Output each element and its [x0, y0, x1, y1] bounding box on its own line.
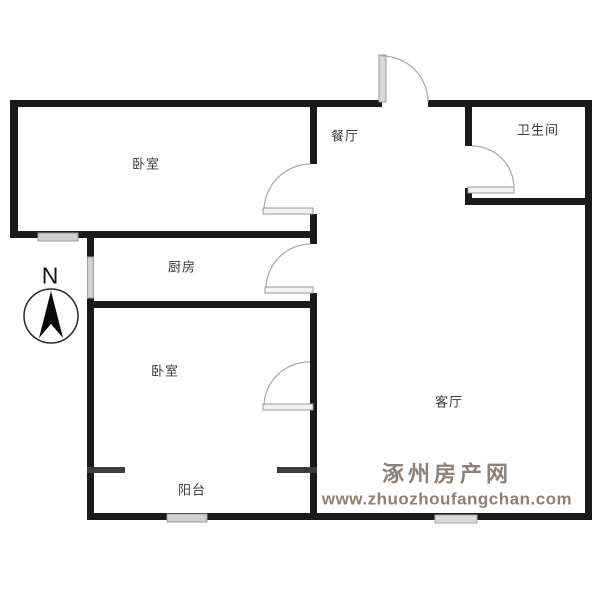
room-label-dining: 餐厅 — [331, 126, 359, 145]
room-label-bedroom-bottom: 卧室 — [151, 361, 179, 380]
watermark-site-url: www.zhuozhoufangchan.com — [322, 490, 572, 510]
bedroom-bottom-door-panel — [263, 404, 313, 410]
watermark: 涿州房产网 www.zhuozhoufangchan.com — [322, 457, 572, 510]
wall-center-mid — [310, 214, 317, 244]
wall-top-left-segment — [10, 100, 382, 107]
bedroom-top-door-panel — [263, 208, 313, 214]
wall-center-upper — [310, 100, 317, 164]
bathroom-door-panel — [468, 187, 514, 193]
bedroom-top-door-swing-arc — [264, 164, 311, 209]
wall-bottom — [87, 513, 592, 520]
wall-balcony-stub-left — [87, 467, 125, 473]
floor-plan: 卧室 餐厅 卫生间 厨房 卧室 客厅 阳台 N 涿州房产网 www.zhuozh… — [0, 0, 600, 600]
wall-right — [585, 100, 592, 520]
room-label-bathroom: 卫生间 — [517, 120, 559, 139]
bedroom-bottom-door-swing-arc — [264, 362, 310, 405]
wall-bathroom-left-upper — [465, 107, 472, 146]
wall-bedroom-bottom-left — [87, 308, 94, 520]
window-balcony — [167, 514, 207, 522]
wall-balcony-stub-right — [277, 467, 317, 473]
wall-top-right-segment — [428, 100, 592, 107]
kitchen-door-swing-arc — [266, 244, 311, 288]
room-label-living: 客厅 — [435, 392, 463, 411]
bathroom-door-swing-arc — [472, 146, 514, 188]
entrance-door-swing-arc — [382, 56, 428, 102]
room-label-bedroom-top: 卧室 — [132, 154, 160, 173]
floor-plan-drawing — [0, 0, 600, 600]
compass-north-label: N — [42, 263, 59, 290]
window-bedroom-top — [38, 233, 78, 241]
window-kitchen — [88, 257, 94, 298]
wall-bathroom-bottom — [465, 198, 592, 205]
wall-bedroom-top-left — [10, 100, 18, 238]
entrance-door-panel — [379, 55, 386, 102]
window-living-room — [435, 515, 477, 523]
room-label-kitchen: 厨房 — [168, 257, 196, 276]
room-label-balcony: 阳台 — [178, 480, 206, 499]
kitchen-door-panel — [265, 287, 313, 293]
watermark-site-name: 涿州房产网 — [322, 457, 572, 489]
wall-kitchen-bedroom-divider — [87, 301, 317, 308]
